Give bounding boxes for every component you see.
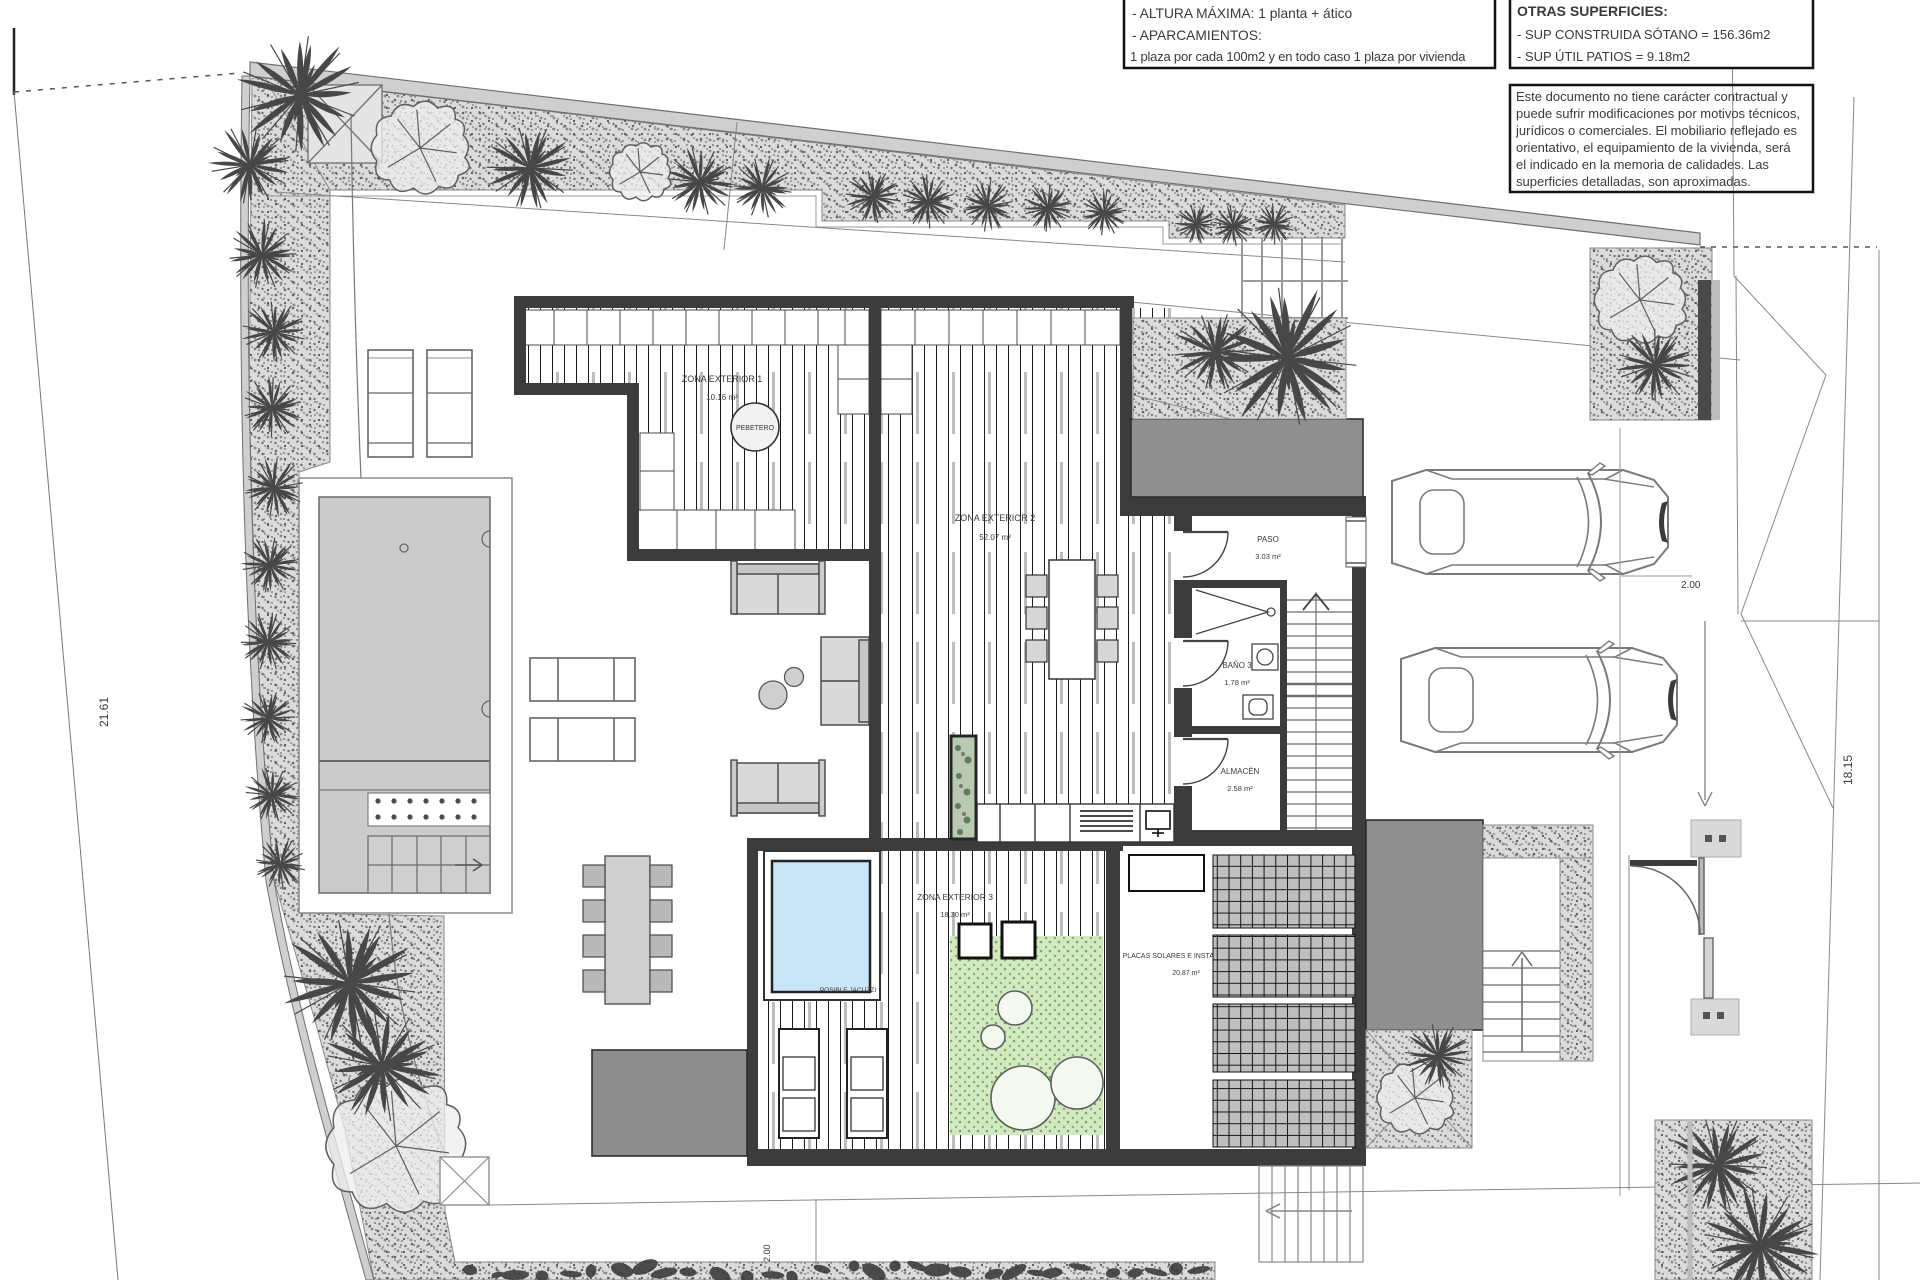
svg-text:ZONA EXTERIOR 2: ZONA EXTERIOR 2 [955,513,1036,523]
svg-text:OTRAS SUPERFICIES:: OTRAS SUPERFICIES: [1517,3,1668,19]
svg-text:superficies detalladas, son ap: superficies detalladas, son aproximadas. [1516,174,1751,189]
svg-text:el indicado en la memoria de c: el indicado en la memoria de calidades. … [1516,157,1769,172]
svg-text:ZONA EXTERIOR 3: ZONA EXTERIOR 3 [917,892,993,902]
svg-text:3.03 m²: 3.03 m² [1255,552,1281,561]
svg-text:10.16 m²: 10.16 m² [706,393,738,402]
svg-text:18.30 m²: 18.30 m² [940,910,970,919]
svg-text:ALMACÉN: ALMACÉN [1221,767,1260,776]
svg-text:- APARCAMIENTOS:: - APARCAMIENTOS: [1132,28,1262,43]
svg-text:2.58 m²: 2.58 m² [1227,784,1253,793]
svg-text:POSIBLE JACUZZI: POSIBLE JACUZZI [820,987,877,994]
svg-text:1.78 m²: 1.78 m² [1224,678,1250,687]
svg-text:1 plaza por cada 100m2 y en to: 1 plaza por cada 100m2 y en todo caso 1 … [1130,49,1466,64]
svg-text:21.61: 21.61 [97,697,111,727]
svg-text:20.87 m²: 20.87 m² [1172,970,1200,977]
svg-text:- SUP CONSTRUIDA SÓTANO = 15: - SUP CONSTRUIDA SÓTANO = 156.36m2 [1517,27,1770,42]
svg-text:puede sufrir modificaciones po: puede sufrir modificaciones por motivos … [1516,106,1800,121]
svg-text:jurídicos o comerciales. El mo: jurídicos o comerciales. El mobiliario r… [1515,123,1798,138]
svg-text:ZONA EXTERIOR 1: ZONA EXTERIOR 1 [682,374,763,384]
svg-text:PEBETERO: PEBETERO [736,425,775,432]
svg-text:18.15: 18.15 [1841,755,1855,785]
svg-text:- ALTURA MÁXIMA: 1 planta + át: - ALTURA MÁXIMA: 1 planta + ático [1132,5,1353,21]
svg-text:BAÑO 3: BAÑO 3 [1222,661,1252,670]
svg-text:Este documento no tiene caráct: Este documento no tiene carácter contrac… [1516,89,1788,104]
svg-text:2.00: 2.00 [1681,580,1701,591]
svg-text:PASO: PASO [1257,535,1279,544]
svg-text:52.07 m²: 52.07 m² [979,533,1011,542]
svg-text:2.00: 2.00 [762,1244,772,1262]
svg-text:orientativo, el equipamiento d: orientativo, el equipamiento de la vivie… [1516,140,1791,155]
svg-text:- SUP ÚTIL PATIOS = 9.18m2: - SUP ÚTIL PATIOS = 9.18m2 [1517,49,1690,64]
